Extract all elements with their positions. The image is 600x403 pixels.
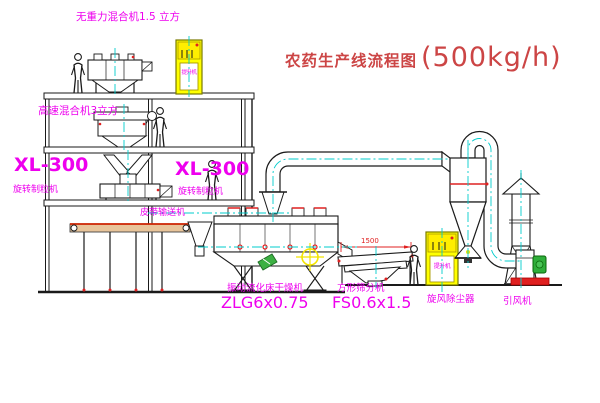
- label-high-speed-mixer: 高速混合机3立方: [38, 106, 118, 117]
- diagram-title-capacity: (500kg/h): [421, 42, 562, 73]
- label-granulator-left-name: 旋转制粒机: [13, 186, 58, 195]
- label-sieve-model: FS0.6x1.5: [332, 295, 411, 311]
- label-granulator-right-name: 旋转制粒机: [178, 188, 223, 197]
- induced-draft-fan: [511, 250, 549, 285]
- label-gravity-mixer: 无重力混合机1.5 立方: [76, 12, 180, 23]
- label-granulator-right-model: XL-300: [175, 160, 249, 179]
- label-sieve-dimension: 1500: [361, 238, 379, 245]
- fluid-bed-dryer: [214, 192, 352, 293]
- pesticide-line-flow-diagram: 农药生产线流程图 (500kg/h) 无重力混合机1.5 立方 高速混合机3立方…: [0, 0, 600, 403]
- person-icon: [72, 54, 85, 93]
- belt-conveyor: [70, 224, 190, 292]
- label-belt-conveyor: 皮带输送机: [140, 209, 185, 218]
- label-granulator-left-model: XL-300: [14, 156, 88, 175]
- label-bucket-elevator-2: 提升机: [429, 264, 455, 270]
- dryer-exhaust-duct: [266, 152, 450, 192]
- diagram-title-text: 农药生产线流程图: [285, 49, 417, 71]
- diagram-title: 农药生产线流程图 (500kg/h): [285, 42, 562, 73]
- label-bucket-elevator-1: 提升机: [179, 71, 199, 77]
- label-cyclone: 旋风除尘器: [427, 295, 475, 305]
- label-induced-draft-fan: 引风机: [503, 297, 532, 307]
- discharge-chute: [188, 222, 212, 256]
- gravity-free-mixer: [88, 54, 152, 93]
- label-dryer-model: ZLG6x0.75: [221, 295, 309, 311]
- rotary-granulator: [100, 155, 172, 200]
